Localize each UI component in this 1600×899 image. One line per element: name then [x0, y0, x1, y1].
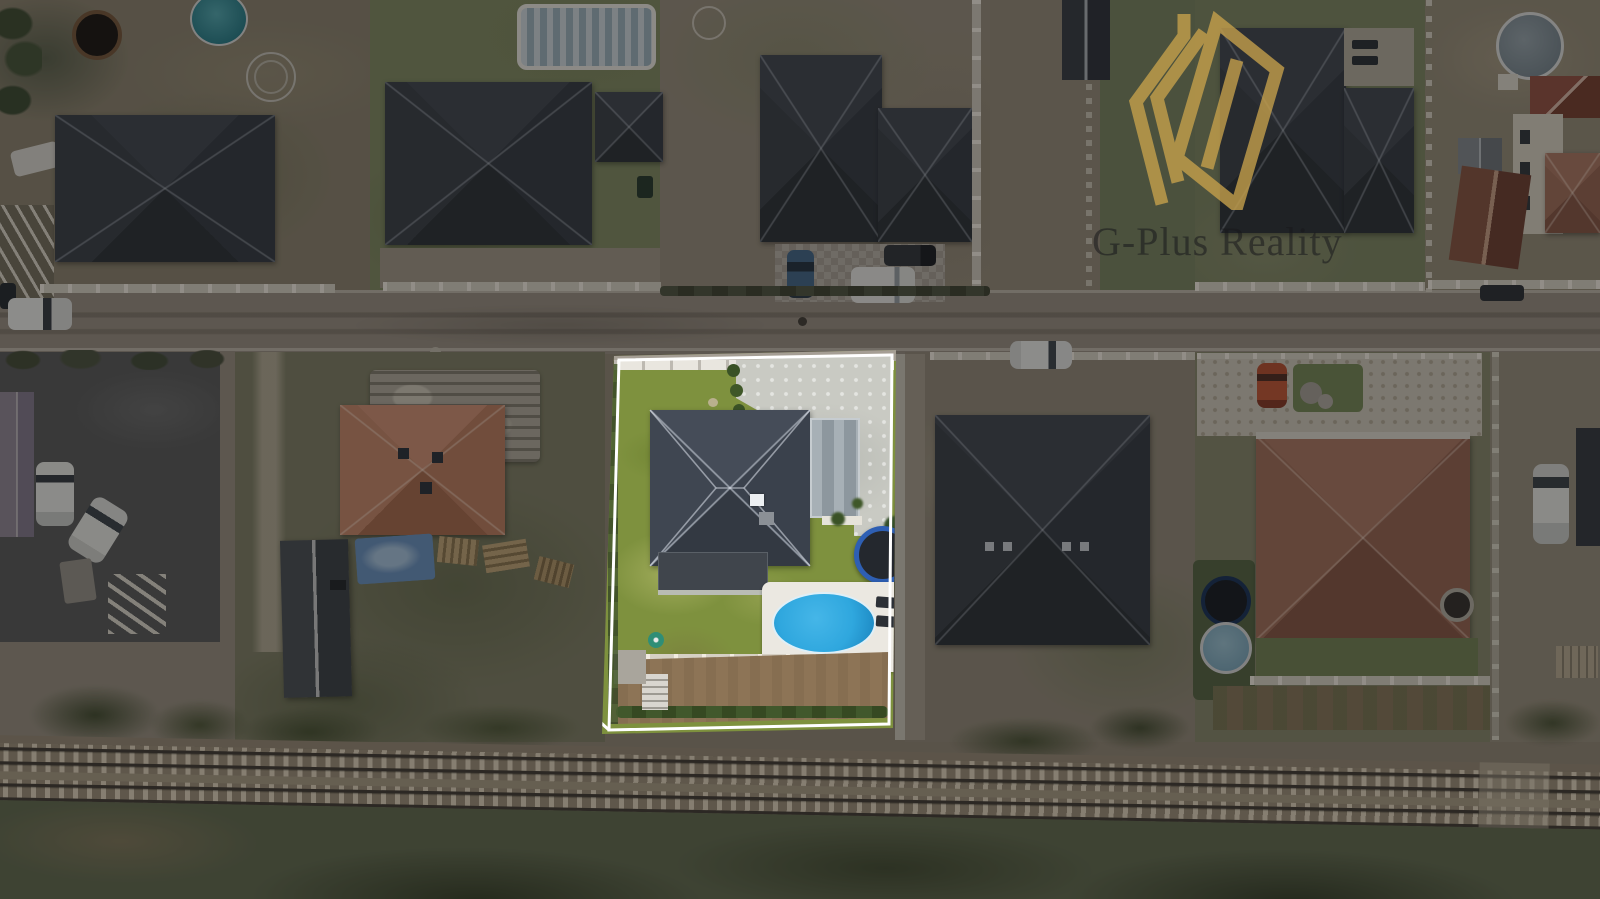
bush — [831, 512, 845, 526]
side-pad — [614, 650, 646, 684]
chimney — [759, 512, 774, 525]
aerial-photo: G-Plus Reality — [0, 0, 1600, 899]
molehill — [708, 398, 718, 407]
terrace-edge — [658, 590, 766, 595]
bush — [852, 498, 863, 509]
terrace — [658, 552, 768, 592]
swimming-pool — [772, 592, 876, 654]
hedge-bush — [730, 384, 743, 397]
highlighted-property — [596, 344, 918, 740]
main-house-roof — [650, 410, 810, 566]
patio-umbrella — [648, 632, 664, 648]
skylight — [750, 494, 764, 506]
hedge-bush — [727, 364, 740, 377]
